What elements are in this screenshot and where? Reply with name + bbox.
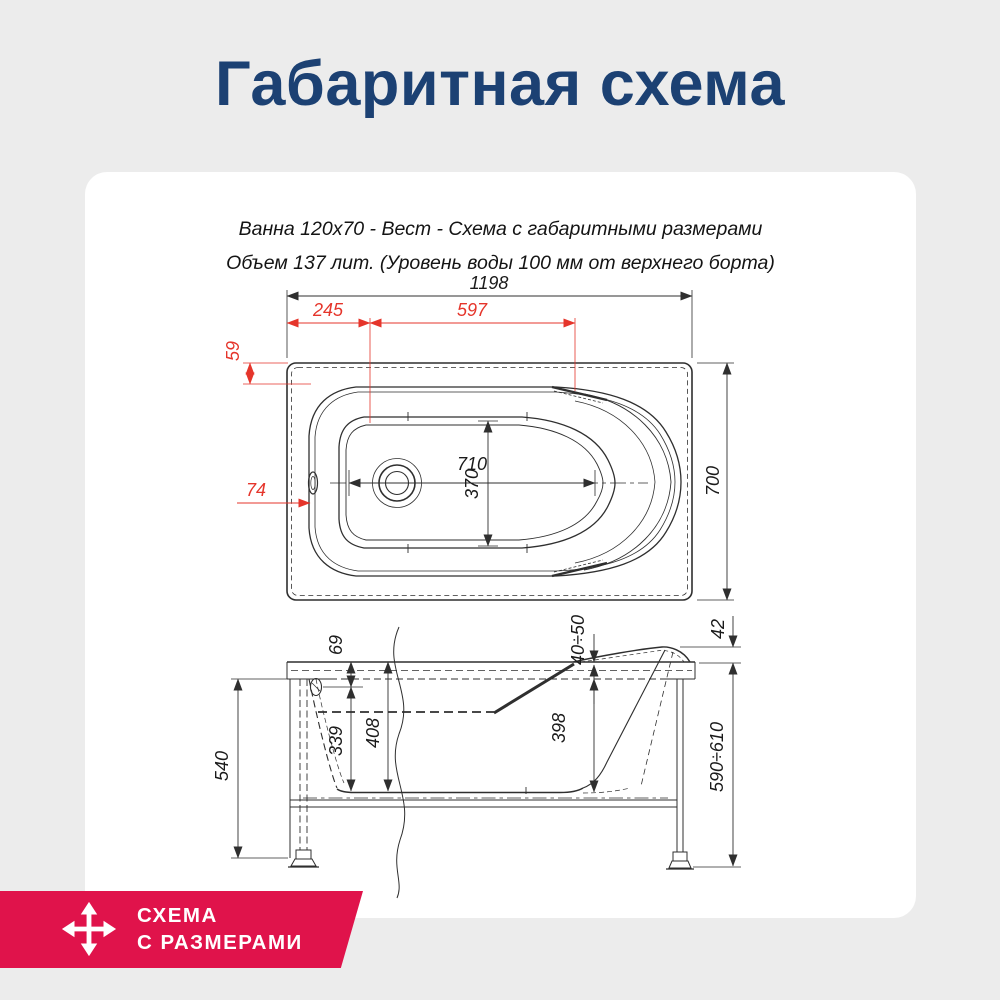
dimensions-badge: СХЕМА С РАЗМЕРАМИ	[0, 891, 363, 968]
dim-floor-to-rim-height: 590÷610	[707, 722, 727, 792]
move-arrows-icon	[60, 900, 118, 958]
dim-headrest-rise: 42	[708, 619, 728, 639]
badge-line2: С РАЗМЕРАМИ	[137, 929, 303, 956]
break-line	[394, 627, 405, 898]
dim-rim-to-overflow: 69	[326, 635, 346, 655]
top-view-dimensions-red: 245 597 59 74	[223, 300, 575, 503]
dim-rim-left-offset: 74	[246, 480, 266, 500]
side-view	[287, 627, 695, 898]
side-view-dimensions: 69 339 408 398 40÷50 42 590÷610 540	[212, 615, 741, 867]
dim-rim-top-offset: 59	[223, 341, 243, 361]
top-view-dimensions: 1198 700 710 370	[287, 273, 734, 600]
dim-overall-width: 700	[703, 466, 723, 496]
dim-left-segment: 245	[312, 300, 344, 320]
badge-text: СХЕМА С РАЗМЕРАМИ	[137, 902, 303, 956]
dim-overflow-to-bottom: 339	[326, 726, 346, 756]
overflow-hole	[309, 472, 318, 494]
dim-rim-thickness: 40÷50	[568, 615, 588, 665]
dim-basin-width: 370	[462, 469, 482, 499]
dim-back-wall-depth: 398	[549, 713, 569, 743]
dim-overall-length: 1198	[470, 273, 509, 293]
top-view	[287, 363, 692, 600]
dim-rim-to-bottom: 408	[363, 718, 383, 748]
dim-middle-segment: 597	[457, 300, 488, 320]
dim-skirt-height: 540	[212, 751, 232, 781]
badge-line1: СХЕМА	[137, 902, 303, 929]
page: { "title": { "text": "Габаритная схема",…	[0, 0, 1000, 1000]
technical-drawing: 1198 700 710 370 245 597 59 74	[0, 0, 1000, 1000]
